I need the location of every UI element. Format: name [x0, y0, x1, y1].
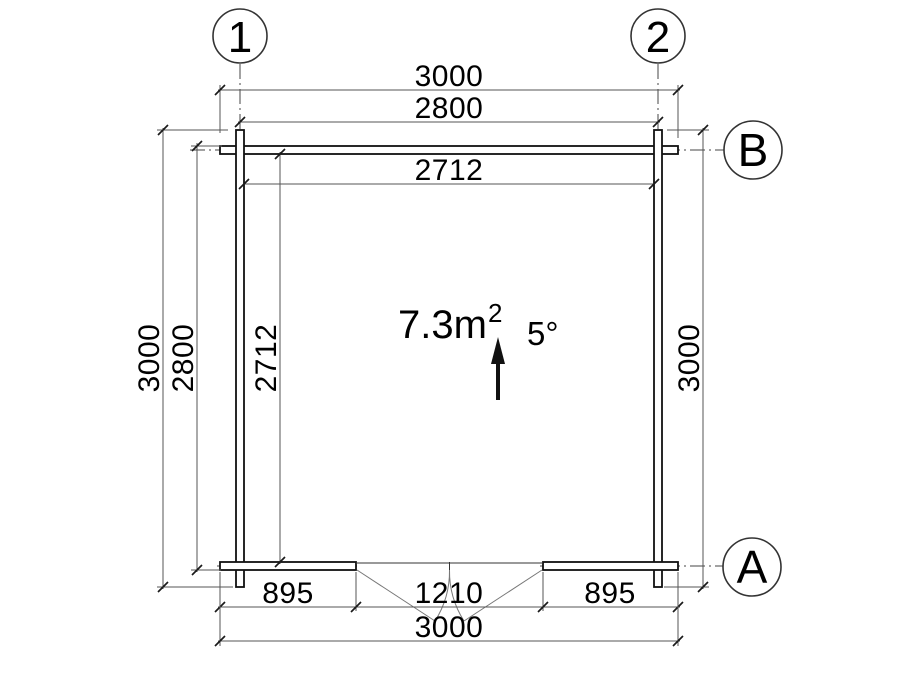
dim-bottom-door-opening-value: 1210 — [415, 577, 484, 610]
walls — [220, 130, 678, 587]
wall-bottom-left — [220, 562, 356, 570]
grid-bubble-2-label: 2 — [646, 13, 670, 62]
floor-plan-drawing: 3000 2800 2712 3000 2800 2712 3000 — [0, 0, 900, 675]
dimension-right-overall: 3000 — [664, 125, 709, 592]
dim-left-outer-depth-value: 2800 — [167, 324, 200, 393]
floor-area-label: 7.3m — [398, 303, 487, 347]
dimension-bottom-segments: 895 1210 895 — [215, 572, 683, 612]
dimension-left-outer-depth: 2800 — [167, 141, 222, 575]
floor-area-exponent: 2 — [488, 298, 502, 328]
wall-right — [654, 130, 662, 587]
dim-top-outer-width-value: 2800 — [415, 92, 484, 125]
dim-left-interior-depth-value: 2712 — [250, 324, 283, 393]
north-arrow-icon — [491, 337, 505, 400]
grid-bubble-b-label: B — [738, 124, 769, 176]
grid-bubble-a-label: A — [737, 541, 768, 593]
roof-pitch-label: 5° — [527, 315, 559, 352]
wall-top — [220, 146, 678, 154]
dim-top-interior-width-value: 2712 — [415, 154, 484, 187]
dimension-left-interior-depth: 2712 — [250, 149, 285, 567]
dimension-top-outer-width: 2800 — [235, 92, 663, 127]
dim-left-overall-value: 3000 — [133, 324, 166, 393]
room-annotations: 7.3m 2 5° — [398, 298, 559, 400]
wall-left — [236, 130, 244, 587]
dim-top-overall-value: 3000 — [415, 60, 484, 93]
wall-bottom-right — [543, 562, 678, 570]
floor-plan-page: 3000 2800 2712 3000 2800 2712 3000 — [0, 0, 900, 675]
dim-bottom-left-segment-value: 895 — [262, 577, 314, 610]
grid-bubble-1-label: 1 — [228, 13, 252, 62]
dim-right-overall-value: 3000 — [673, 324, 706, 393]
dimension-top-interior-width: 2712 — [239, 154, 659, 189]
dim-bottom-right-segment-value: 895 — [584, 577, 636, 610]
dim-bottom-overall-value: 3000 — [415, 611, 484, 644]
